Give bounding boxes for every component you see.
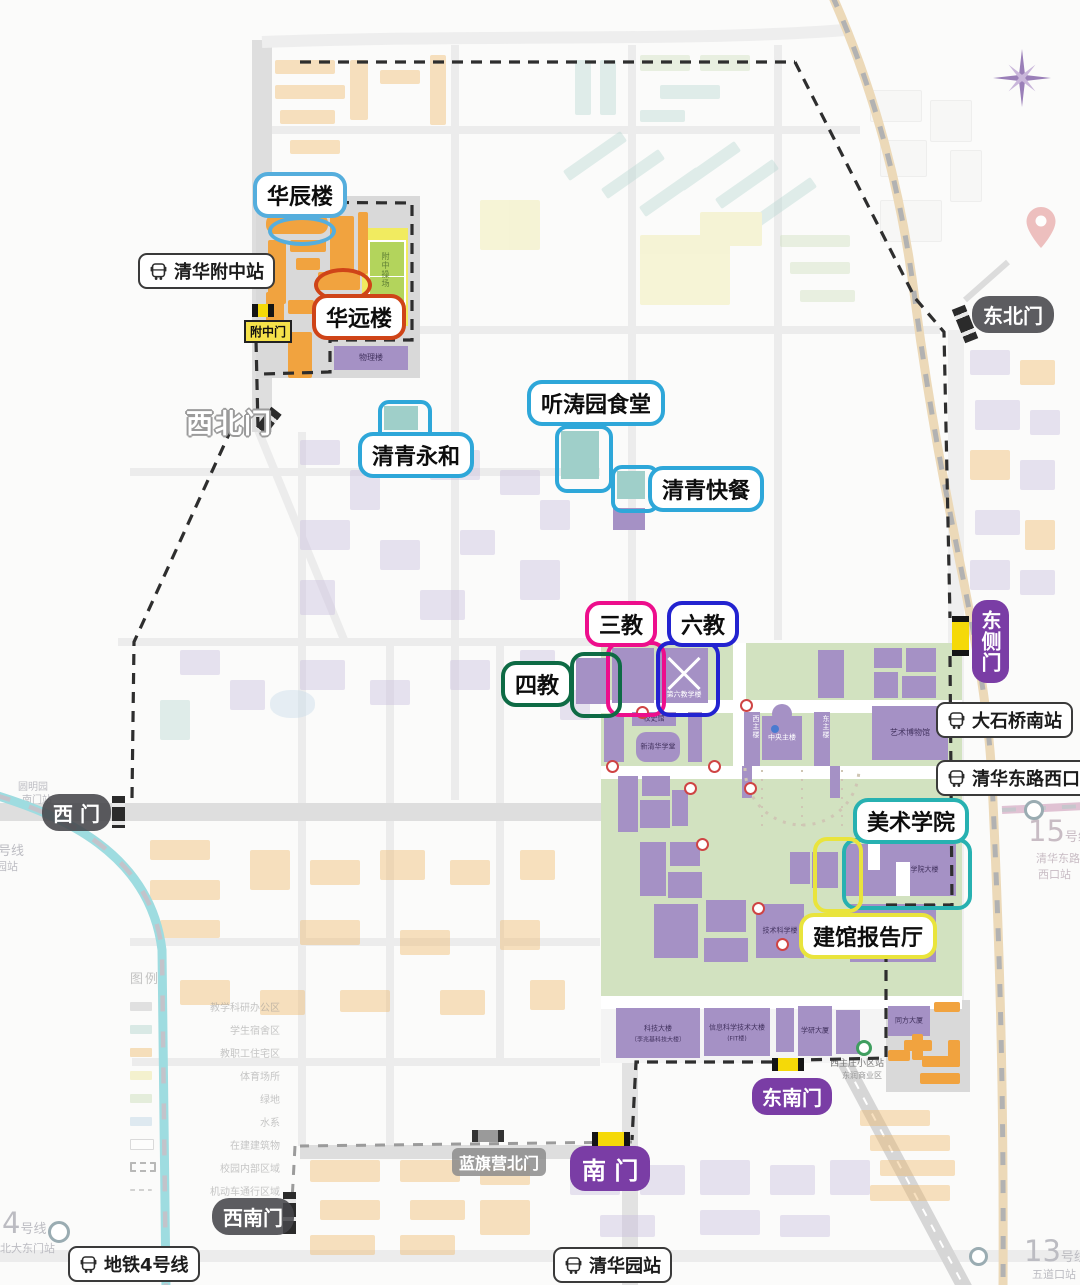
qinghuayuan-stop: 清华园站: [553, 1247, 672, 1283]
no-entry-icon: [708, 760, 721, 773]
legend-swatch: [130, 1025, 152, 1034]
dongnanmen-gate-label: 东南门: [752, 1078, 832, 1115]
bus-icon: [149, 262, 168, 281]
dongrun-label: 东润商业区: [842, 1070, 882, 1081]
legend-label: 在建建筑物: [230, 1137, 280, 1152]
jianguan-callout: 建馆报告厅: [799, 913, 937, 959]
legend-label: 机动车通行区域: [210, 1183, 280, 1198]
legend-swatch: [130, 1189, 152, 1191]
legend-row: 教职工住宅区: [130, 1047, 280, 1057]
building: [654, 904, 698, 958]
huayuan-callout: 华远楼: [312, 294, 406, 340]
legend-swatch: [130, 1071, 152, 1080]
xueyan-label: 学研大厦: [798, 1027, 832, 1036]
line-suffix: 号线: [0, 844, 24, 859]
tingtao-outline: [555, 425, 613, 493]
no-entry-icon: [696, 838, 709, 851]
map-legend: 图例 教学科研办公区 学生宿舍区 教职工住宅区 体育场所 绿地 水系 在建建筑物…: [130, 968, 280, 1208]
keji-label: 科技大楼: [616, 1025, 700, 1034]
dongzhulou-label: 东主楼: [818, 715, 830, 739]
legend-swatch: [130, 1002, 152, 1011]
building: [706, 900, 746, 932]
legend-swatch: [130, 1094, 152, 1103]
sijiao-outline: [570, 652, 622, 718]
bus-stop-label: 大石桥南站: [972, 707, 1062, 733]
bus-stop-label: 清华附中站: [174, 258, 264, 284]
ximen-gate-label: 西 门: [42, 794, 111, 831]
building: [906, 648, 936, 672]
building: [642, 776, 670, 796]
zhulou-building: 中央主楼: [762, 716, 802, 760]
legend-row: 机动车通行区域: [130, 1185, 280, 1195]
keji-sublabel: 〔李兆基科技大楼〕: [616, 1036, 700, 1044]
no-entry-icon: [776, 938, 789, 951]
bus-stop-label: 地铁4号线: [104, 1251, 189, 1277]
bus-stop-marker: [856, 1040, 872, 1056]
fuzhongmen-gate-label: 附中门: [244, 320, 292, 343]
xinqinghua-label: 新清华学堂: [636, 743, 680, 752]
legend-swatch: [130, 1117, 152, 1126]
legend-row: 体育场所: [130, 1070, 280, 1080]
building: [330, 216, 354, 272]
xizhulou-building: 西主楼: [744, 712, 760, 766]
legend-row: 绿地: [130, 1093, 280, 1103]
building: [818, 650, 844, 698]
keji-building: 科技大楼 〔李兆基科技大楼〕: [616, 1008, 700, 1058]
legend-swatch: [130, 1162, 156, 1172]
xinanmen-gate-label: 西南门: [212, 1198, 294, 1235]
huachen-outline: [268, 216, 336, 246]
building: [704, 938, 748, 962]
fit-building: 信息科学技术大楼 (FIT楼): [704, 1008, 770, 1056]
legend-row: 在建建筑物: [130, 1139, 280, 1149]
building: [920, 1073, 960, 1084]
legend-label: 绿地: [260, 1091, 280, 1106]
building: [296, 258, 320, 270]
tongfang-label: 同方大厦: [888, 1017, 930, 1026]
legend-label: 体育场所: [240, 1068, 280, 1083]
sijiao-callout: 四教: [501, 661, 573, 707]
lanqiying-gate-marker: [472, 1130, 504, 1142]
line4-suffix: 号线: [20, 1222, 46, 1237]
ximen-gate-marker: [112, 796, 125, 828]
building: [688, 712, 702, 762]
fit-label: 信息科学技术大楼: [704, 1024, 770, 1033]
donglu-xikou-bus-stop: 清华东路西口站: [936, 760, 1080, 796]
yonghe-callout: 清青永和: [358, 432, 474, 478]
metro-station-marker: [1024, 800, 1044, 820]
legend-row: 水系: [130, 1116, 280, 1126]
bus-icon: [564, 1256, 583, 1275]
line13-text: 13号线: [1024, 1234, 1080, 1268]
no-entry-icon: [752, 902, 765, 915]
building: [640, 842, 666, 896]
dongnanmen-gate-marker: [772, 1058, 804, 1071]
bus-stop-label: 清华东路西口站: [972, 765, 1080, 791]
legend-title: 图例: [130, 968, 280, 987]
building: [874, 672, 898, 698]
legend-label: 校园内部区域: [220, 1160, 280, 1175]
no-entry-icon: [606, 760, 619, 773]
dongcemen-gate-marker: [952, 616, 969, 656]
metro-station-marker: [48, 1221, 70, 1243]
legend-swatch: [130, 1048, 152, 1057]
xinqinghua-building: 新清华学堂: [636, 732, 680, 762]
line4-text: 4号线: [2, 1206, 46, 1240]
building: [668, 872, 702, 898]
jianguan-outline: [813, 837, 863, 913]
meiyuan-callout: 美术学院: [853, 798, 969, 844]
legend-label: 水系: [260, 1114, 280, 1129]
no-entry-icon: [740, 699, 753, 712]
kuaican-callout: 清青快餐: [648, 466, 764, 512]
fuzhong-bus-stop: 清华附中站: [138, 253, 275, 289]
zhulou-label: 中央主楼: [762, 734, 802, 743]
fuzhong-field-label: 附中操场: [380, 252, 391, 288]
tongfang-building: 同方大厦: [888, 1006, 930, 1036]
xibeimen-gate-label: 西北门: [186, 402, 273, 441]
building: [618, 776, 638, 832]
nanmen-gate-marker: [592, 1132, 630, 1146]
bus-icon: [947, 711, 966, 730]
legend-label: 教学科研办公区: [210, 999, 280, 1014]
fit-sublabel: (FIT楼): [704, 1035, 770, 1043]
no-entry-icon: [744, 782, 757, 795]
beida-dongmen-text: 北大东门站: [0, 1240, 55, 1256]
xueyan-building: 学研大厦: [798, 1006, 832, 1056]
bus-icon: [947, 769, 966, 788]
building: [790, 852, 810, 884]
building: [604, 716, 624, 762]
legend-row: 学生宿舍区: [130, 1024, 280, 1034]
yuanmingyuan-zhan-text: 圆明园站: [0, 858, 18, 874]
wuli-label: 物理楼: [334, 353, 408, 363]
building: [934, 1002, 960, 1012]
xizhuzhuang-stop-label: 西主庄小区站: [830, 1056, 884, 1069]
line4-number: 4: [2, 1206, 20, 1240]
liujiao-outline: [656, 641, 720, 717]
xizhulou-label: 西主楼: [748, 715, 760, 739]
bus-stop-label: 清华园站: [589, 1252, 661, 1278]
tingtao-callout: 听涛园食堂: [527, 380, 665, 426]
building: [640, 800, 670, 828]
wuli-building: 物理楼: [334, 346, 408, 370]
ditie4-stop: 地铁4号线: [68, 1246, 200, 1282]
campus-map: 图例 教学科研办公区 学生宿舍区 教职工住宅区 体育场所 绿地 水系 在建建筑物…: [0, 0, 1080, 1285]
legend-label: 教职工住宅区: [220, 1045, 280, 1060]
building: [672, 790, 688, 826]
legend-row: 校园内部区域: [130, 1162, 280, 1172]
sanjiao-callout: 三教: [585, 601, 657, 647]
legend-label: 学生宿舍区: [230, 1022, 280, 1037]
building: [358, 212, 368, 274]
building: [776, 1008, 794, 1052]
dongcemen-gate-label: 东侧门: [972, 600, 1009, 683]
line13-number: 13: [1024, 1234, 1061, 1268]
info-icon: [771, 725, 779, 733]
wudaokou-text: 五道口站: [1032, 1266, 1076, 1282]
dashiqiao-bus-stop: 大石桥南站: [936, 702, 1073, 738]
liujiao-callout: 六教: [667, 601, 739, 647]
metro-station-marker: [969, 1247, 988, 1266]
building: [902, 676, 936, 698]
building: [888, 1050, 910, 1061]
line13-suffix: 号线: [1061, 1250, 1080, 1265]
building: [288, 300, 314, 314]
dongbeimen-gate-label: 东北门: [972, 296, 1054, 333]
building: [874, 648, 902, 668]
donglu-text: 清华东路: [1036, 850, 1080, 866]
dongzhulou-building: 东主楼: [814, 712, 830, 766]
jishukexue-label: 技术科学楼: [756, 927, 804, 936]
no-entry-icon: [684, 782, 697, 795]
xikou-text: 西口站: [1038, 866, 1071, 882]
bus-icon: [79, 1255, 98, 1274]
nanmen-gate-label: 南 门: [570, 1146, 650, 1191]
legend-row: 教学科研办公区: [130, 1001, 280, 1011]
huachen-callout: 华辰楼: [253, 172, 347, 218]
line15-suffix: 号线: [1065, 830, 1080, 845]
lanqiying-gate-label: 蓝旗营北门: [452, 1148, 546, 1176]
legend-swatch: [130, 1139, 154, 1150]
building: [830, 766, 840, 798]
building: [948, 1040, 960, 1067]
fuzhongmen-gate-marker: [252, 304, 274, 317]
